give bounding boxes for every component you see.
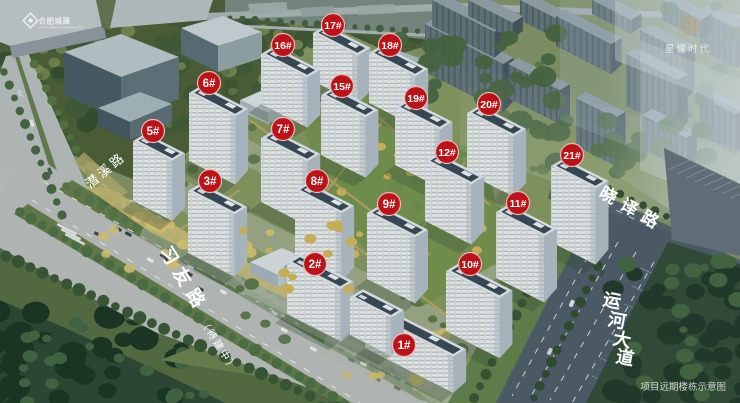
svg-text:6#: 6# <box>203 78 216 90</box>
svg-text:15#: 15# <box>333 81 351 93</box>
svg-text:20#: 20# <box>480 99 498 111</box>
svg-text:19#: 19# <box>407 93 425 105</box>
svg-text:10#: 10# <box>461 259 479 271</box>
svg-text:7#: 7# <box>277 124 290 136</box>
svg-text:合肥城建: 合肥城建 <box>39 16 71 26</box>
svg-text:1#: 1# <box>398 340 411 352</box>
svg-text:9#: 9# <box>383 199 396 211</box>
svg-text:3#: 3# <box>204 176 217 188</box>
svg-text:5#: 5# <box>147 126 160 138</box>
svg-text:项目远期楼栋示意图: 项目远期楼栋示意图 <box>640 381 726 393</box>
svg-text:16#: 16# <box>274 40 292 52</box>
svg-text:8#: 8# <box>311 176 324 188</box>
svg-text:2#: 2# <box>309 259 322 271</box>
svg-text:星耀时代: 星耀时代 <box>665 43 711 55</box>
svg-text:21#: 21# <box>563 150 581 162</box>
svg-text:STAR SHINE ERA: STAR SHINE ERA <box>667 57 710 61</box>
svg-text:11#: 11# <box>510 198 527 210</box>
svg-text:HEFEI URBAN CONSTRUCTION: HEFEI URBAN CONSTRUCTION <box>39 26 84 30</box>
svg-text:18#: 18# <box>381 40 399 52</box>
svg-text:17#: 17# <box>324 20 342 32</box>
svg-text:12#: 12# <box>438 147 456 159</box>
